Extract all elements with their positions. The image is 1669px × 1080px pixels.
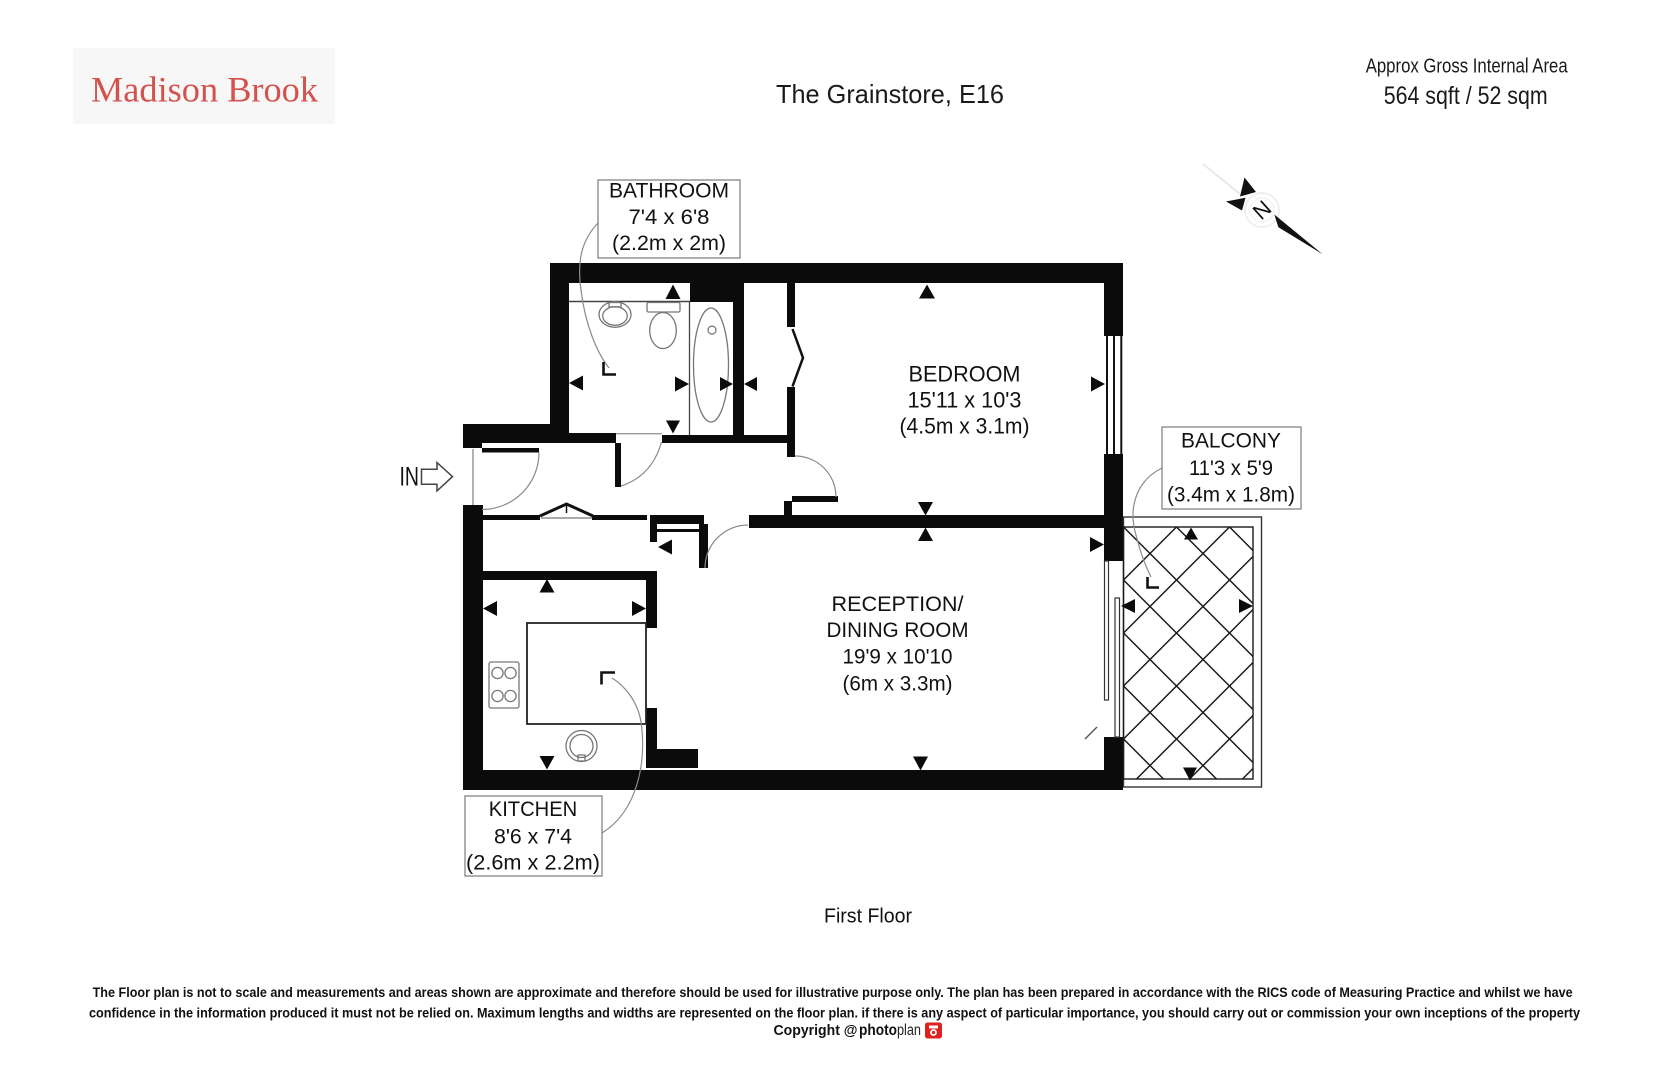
svg-text:The Grainstore, E16: The Grainstore, E16 bbox=[776, 79, 1004, 109]
svg-text:BATHROOM: BATHROOM bbox=[609, 179, 729, 203]
svg-text:DINING ROOM: DINING ROOM bbox=[827, 618, 969, 642]
svg-text:Approx Gross Internal Area: Approx Gross Internal Area bbox=[1366, 56, 1569, 78]
svg-text:RECEPTION/: RECEPTION/ bbox=[832, 592, 964, 616]
svg-text:BALCONY: BALCONY bbox=[1181, 429, 1281, 453]
svg-text:Copyright @: Copyright @ bbox=[774, 1023, 858, 1039]
svg-text:BEDROOM: BEDROOM bbox=[909, 361, 1021, 386]
svg-text:11'3 x 5'9: 11'3 x 5'9 bbox=[1189, 456, 1273, 480]
svg-text:The Floor plan is not to scale: The Floor plan is not to scale and measu… bbox=[93, 985, 1573, 1000]
svg-text:plan: plan bbox=[897, 1022, 921, 1039]
svg-text:confidence in the information: confidence in the information produced i… bbox=[89, 1006, 1580, 1021]
svg-text:First Floor: First Floor bbox=[824, 906, 912, 928]
svg-text:(4.5m x 3.1m): (4.5m x 3.1m) bbox=[900, 414, 1030, 439]
svg-text:(2.2m x 2m): (2.2m x 2m) bbox=[612, 231, 726, 255]
svg-text:8'6 x 7'4: 8'6 x 7'4 bbox=[494, 825, 572, 849]
svg-text:KITCHEN: KITCHEN bbox=[489, 797, 578, 821]
svg-text:7'4 x 6'8: 7'4 x 6'8 bbox=[629, 205, 710, 229]
svg-text:(2.6m x 2.2m): (2.6m x 2.2m) bbox=[466, 851, 600, 875]
svg-text:19'9 x 10'10: 19'9 x 10'10 bbox=[843, 645, 953, 669]
svg-text:photo: photo bbox=[859, 1022, 897, 1039]
svg-text:(6m x 3.3m): (6m x 3.3m) bbox=[843, 672, 953, 696]
svg-text:15'11 x 10'3: 15'11 x 10'3 bbox=[908, 387, 1022, 412]
svg-text:564 sqft / 52 sqm: 564 sqft / 52 sqm bbox=[1384, 82, 1548, 110]
svg-text:Madison Brook: Madison Brook bbox=[91, 70, 318, 110]
svg-text:IN: IN bbox=[400, 462, 420, 492]
svg-text:(3.4m x 1.8m): (3.4m x 1.8m) bbox=[1167, 483, 1295, 507]
